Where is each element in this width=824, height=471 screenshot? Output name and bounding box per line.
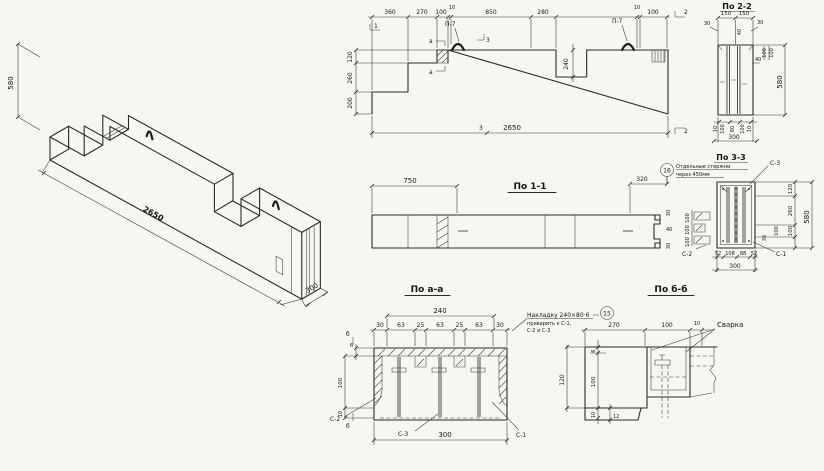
section-b-b-title: По б-б — [654, 284, 687, 295]
s22-dim-width: 300 — [728, 134, 740, 141]
s33-dim: 100 — [774, 226, 780, 236]
note-16-line1: Отдельные стержни — [676, 164, 730, 170]
elev-dim: 850 — [485, 9, 497, 16]
section-marker-a-bottom: а — [429, 69, 433, 76]
saa-dim: 6 — [350, 343, 353, 349]
s22-dim: 40 — [755, 57, 761, 63]
saa-marker-b-top: б — [346, 331, 350, 338]
elev-dim: 280 — [537, 9, 549, 16]
s33-dim: 108 — [725, 251, 735, 257]
note-15-line1: Накладку 240×80·6 — [527, 312, 590, 319]
saa-dim-width: 300 — [438, 431, 451, 439]
s33-dim: 100 — [685, 213, 691, 223]
s22-dim: 30 — [704, 21, 710, 27]
saa-dim: 63 — [475, 322, 483, 329]
sbb-dim: 120 — [559, 374, 566, 386]
drawing-sheet: 580 2650 300 360 270 100 10 850 280 10 1… — [0, 0, 824, 471]
s33-dim: 52 — [751, 251, 757, 257]
s33-dim-width: 300 — [729, 263, 741, 270]
s22-dim: 40 — [737, 29, 743, 35]
sbb-dim: 10 — [591, 412, 597, 418]
s22-dim: 80 — [730, 126, 736, 132]
section-marker-3-bottom: 3 — [479, 125, 483, 132]
s33-dim: 88 — [740, 251, 746, 257]
elev-dim: 260 — [347, 72, 354, 84]
s22-dim: 100 — [769, 48, 775, 58]
section-marker-2-top: 2 — [684, 9, 688, 16]
section-3-3-title: По 3-3 — [716, 153, 745, 162]
s33-dim: 100 — [685, 237, 691, 247]
elev-dim: 270 — [416, 9, 428, 16]
s11-dim: 320 — [636, 176, 648, 183]
blueprint-canvas: 580 2650 300 360 270 100 10 850 280 10 1… — [0, 0, 824, 471]
s33-dim-height: 580 — [803, 210, 811, 223]
saa-dim: 100 — [338, 377, 344, 388]
s22-dim: 150 — [739, 11, 750, 17]
saa-mesh-c1-label: С-1 — [516, 432, 526, 439]
saa-mesh-c2-label: С-2 — [330, 416, 340, 423]
saa-dim: 63 — [397, 322, 405, 329]
section-marker-1: 1 — [374, 23, 378, 30]
s33-mesh-c3-label: С-3 — [770, 160, 780, 167]
sbb-dim: 100 — [661, 322, 673, 329]
s33-mesh-c1-label: С-1 — [776, 251, 786, 258]
s22-dim: 30 — [757, 20, 763, 26]
s11-dim: 750 — [403, 177, 416, 185]
elev-dim-notch: 240 — [563, 58, 570, 70]
saa-dim: 240 — [433, 307, 446, 315]
elev-dim: 360 — [384, 9, 396, 16]
saa-dim: 63 — [436, 322, 444, 329]
s11-dim: 30 — [666, 210, 672, 216]
s22-dim: 100 — [740, 124, 746, 134]
sbb-dim: 10 — [694, 321, 700, 327]
s22-dim: 100 — [720, 124, 726, 134]
section-marker-3-top: 3 — [486, 37, 490, 44]
saa-dim: 30 — [376, 322, 384, 329]
saa-marker-b-bottom: б — [346, 423, 350, 430]
sbb-dim: 100 — [591, 376, 597, 387]
s33-dim: 120 — [788, 183, 794, 194]
elev-dim: 120 — [347, 51, 354, 63]
s33-dim: 100 — [788, 225, 794, 236]
section-2-2-title: По 2-2 — [722, 2, 751, 11]
saa-dim: 30 — [496, 322, 504, 329]
section-a-a-title: По а-а — [411, 285, 444, 295]
section-1-1-title: По 1-1 — [513, 182, 546, 192]
elev-dim: 10 — [634, 5, 640, 11]
elev-dim: 10 — [449, 5, 455, 11]
section-marker-a-top: а — [429, 38, 433, 45]
sbb-weld-label: Сварка — [717, 321, 743, 329]
elev-dim: 200 — [347, 97, 354, 109]
s11-dim: 40 — [666, 227, 672, 233]
saa-mesh-c3-label: С-3 — [398, 431, 408, 438]
iso-dim-height: 580 — [7, 76, 15, 89]
elev-dim-total: 2650 — [503, 124, 521, 132]
note-15-number: 15 — [603, 311, 611, 318]
s33-dim: 52 — [715, 251, 721, 257]
sbb-dim: 6 — [591, 349, 597, 352]
s22-dim: 10 — [747, 126, 753, 132]
s22-dim: 150 — [721, 11, 732, 17]
elev-dim: 100 — [647, 9, 659, 16]
section-marker-2-bottom: 2 — [684, 128, 688, 135]
note-16-line2: через 450мм — [676, 172, 710, 178]
s33-dim: 36 — [762, 235, 768, 241]
saa-dim: 25 — [456, 322, 464, 329]
loop-tag-1: П-7 — [445, 21, 456, 28]
s33-dim: 260 — [788, 205, 794, 216]
s33-mesh-c2-label: С-2 — [682, 251, 692, 258]
loop-tag-2: П-7 — [612, 18, 623, 25]
note-16-number: 16 — [663, 168, 671, 175]
s22-dim: 100 — [762, 48, 768, 58]
sbb-dim: 270 — [608, 322, 620, 329]
s33-dim: 100 — [685, 225, 691, 235]
paper-background — [0, 0, 824, 471]
sbb-dim: 12 — [613, 414, 619, 420]
elev-dim: 100 — [435, 9, 447, 16]
s22-dim: 10 — [713, 126, 719, 132]
s11-dim: 30 — [666, 243, 672, 249]
saa-dim: 25 — [417, 322, 425, 329]
s22-dim-height: 580 — [776, 75, 784, 88]
note-15-line2: приварить к С-1, — [527, 321, 572, 327]
note-15-line3: С-2 и С-3 — [527, 328, 550, 334]
